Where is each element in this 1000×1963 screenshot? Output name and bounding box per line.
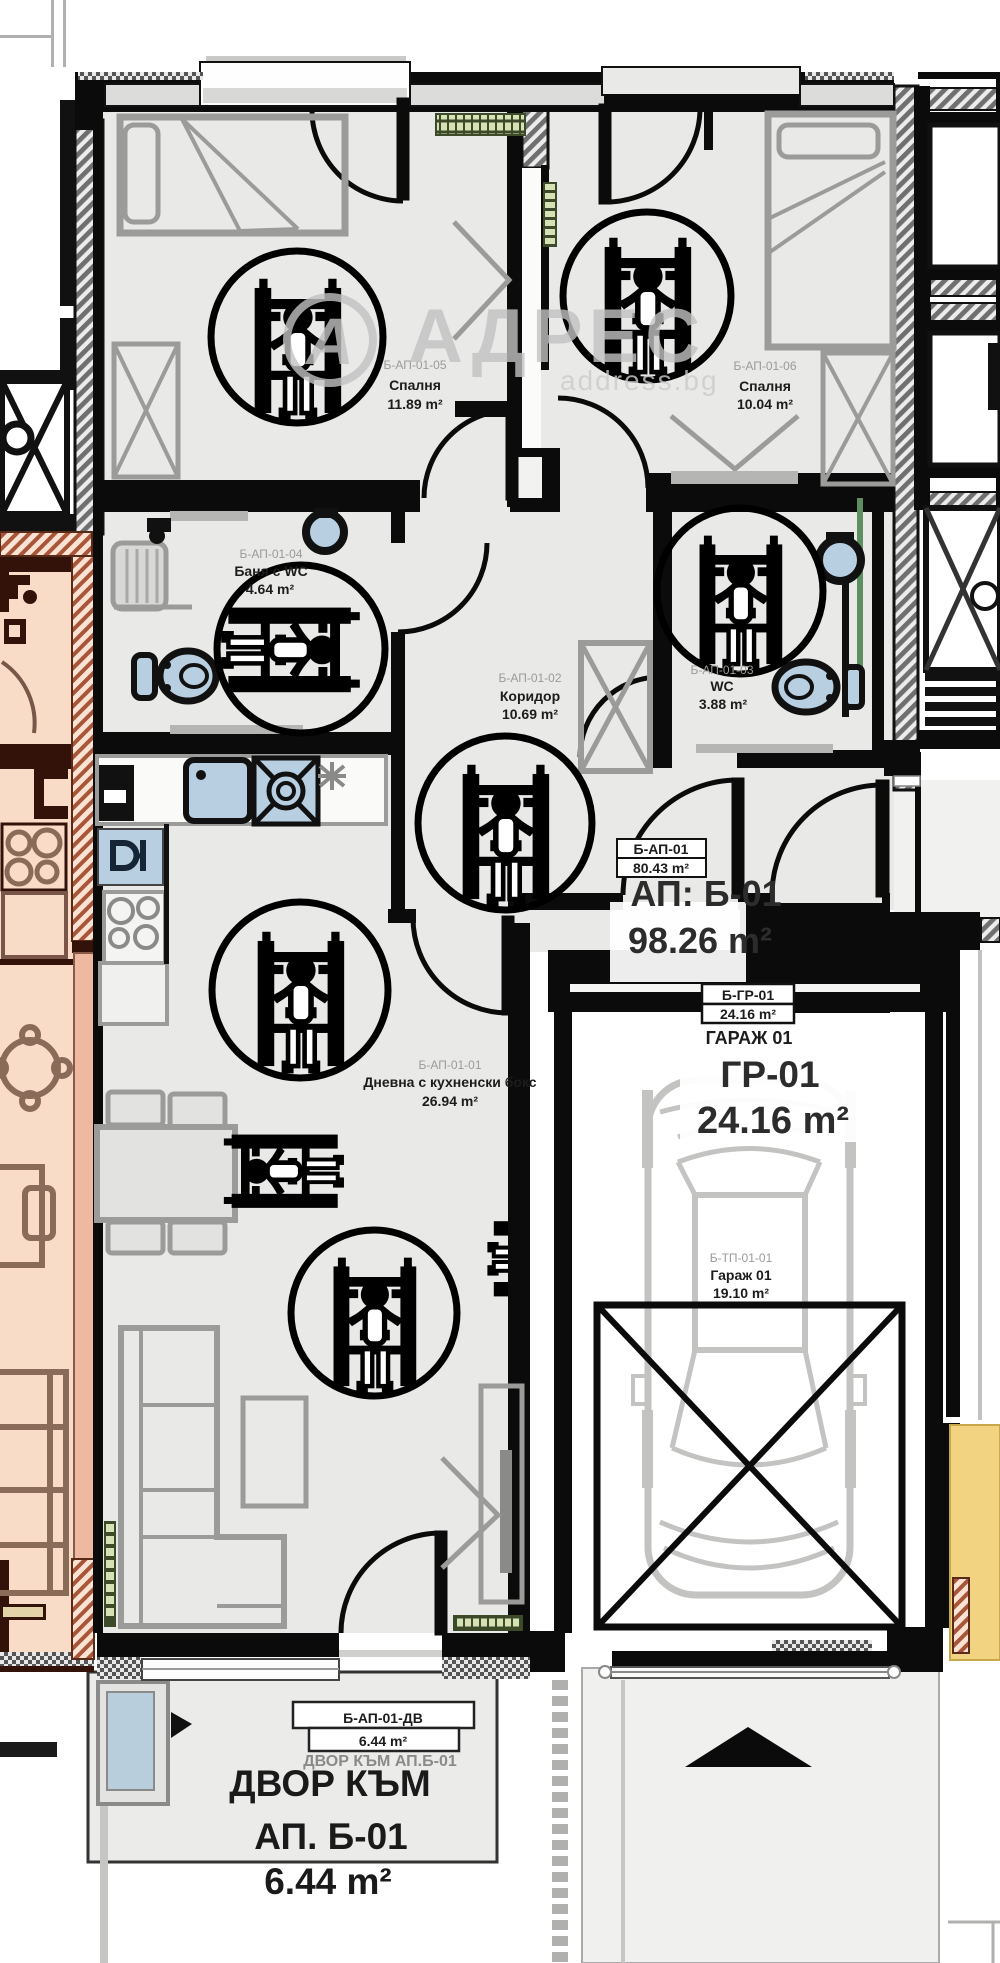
svg-text:address.bg: address.bg [560, 365, 719, 396]
svg-text:10.04 m²: 10.04 m² [737, 396, 793, 412]
svg-text:WC: WC [710, 678, 733, 694]
svg-text:Б-АП-01-02: Б-АП-01-02 [498, 671, 561, 685]
svg-text:A: A [304, 304, 354, 378]
svg-text:26.94 m²: 26.94 m² [422, 1093, 478, 1109]
svg-text:11.89 m²: 11.89 m² [387, 396, 443, 412]
svg-text:Коридор: Коридор [500, 688, 560, 704]
svg-text:Б-АП-01-04: Б-АП-01-04 [239, 547, 302, 561]
svg-text:Баня с WC: Баня с WC [234, 563, 307, 579]
svg-text:Б-АП-01-01: Б-АП-01-01 [418, 1058, 481, 1072]
svg-text:98.26 m²: 98.26 m² [628, 920, 772, 961]
svg-text:Гараж 01: Гараж 01 [710, 1267, 771, 1283]
svg-text:АП: Б-01: АП: Б-01 [630, 873, 781, 914]
svg-text:Спалня: Спалня [389, 377, 441, 393]
svg-text:ДВОР КЪМ: ДВОР КЪМ [229, 1763, 430, 1804]
svg-text:Б-АП-01-03: Б-АП-01-03 [690, 663, 753, 677]
svg-text:Б-АП-01: Б-АП-01 [634, 841, 689, 857]
svg-text:Дневна с кухненски бокс: Дневна с кухненски бокс [363, 1074, 536, 1090]
svg-text:АП. Б-01: АП. Б-01 [254, 1816, 407, 1857]
svg-text:Спалня: Спалня [739, 378, 791, 394]
svg-text:Б-ГР-01: Б-ГР-01 [722, 987, 774, 1003]
svg-text:6.44 m²: 6.44 m² [359, 1733, 408, 1749]
svg-text:4.64 m²: 4.64 m² [246, 581, 295, 597]
svg-text:Б-АП-01-ДВ: Б-АП-01-ДВ [343, 1710, 423, 1726]
svg-text:ГР-01: ГР-01 [720, 1054, 819, 1095]
svg-text:24.16 m²: 24.16 m² [697, 1100, 849, 1142]
svg-text:6.44 m²: 6.44 m² [264, 1861, 392, 1902]
svg-text:19.10 m²: 19.10 m² [713, 1285, 769, 1301]
svg-text:24.16 m²: 24.16 m² [720, 1006, 776, 1022]
svg-text:ГАРАЖ 01: ГАРАЖ 01 [706, 1028, 793, 1048]
svg-text:3.88 m²: 3.88 m² [699, 696, 748, 712]
svg-text:Б-АП-01-06: Б-АП-01-06 [733, 359, 796, 373]
svg-text:Б-ТП-01-01: Б-ТП-01-01 [710, 1251, 773, 1265]
svg-text:10.69 m²: 10.69 m² [502, 706, 558, 722]
